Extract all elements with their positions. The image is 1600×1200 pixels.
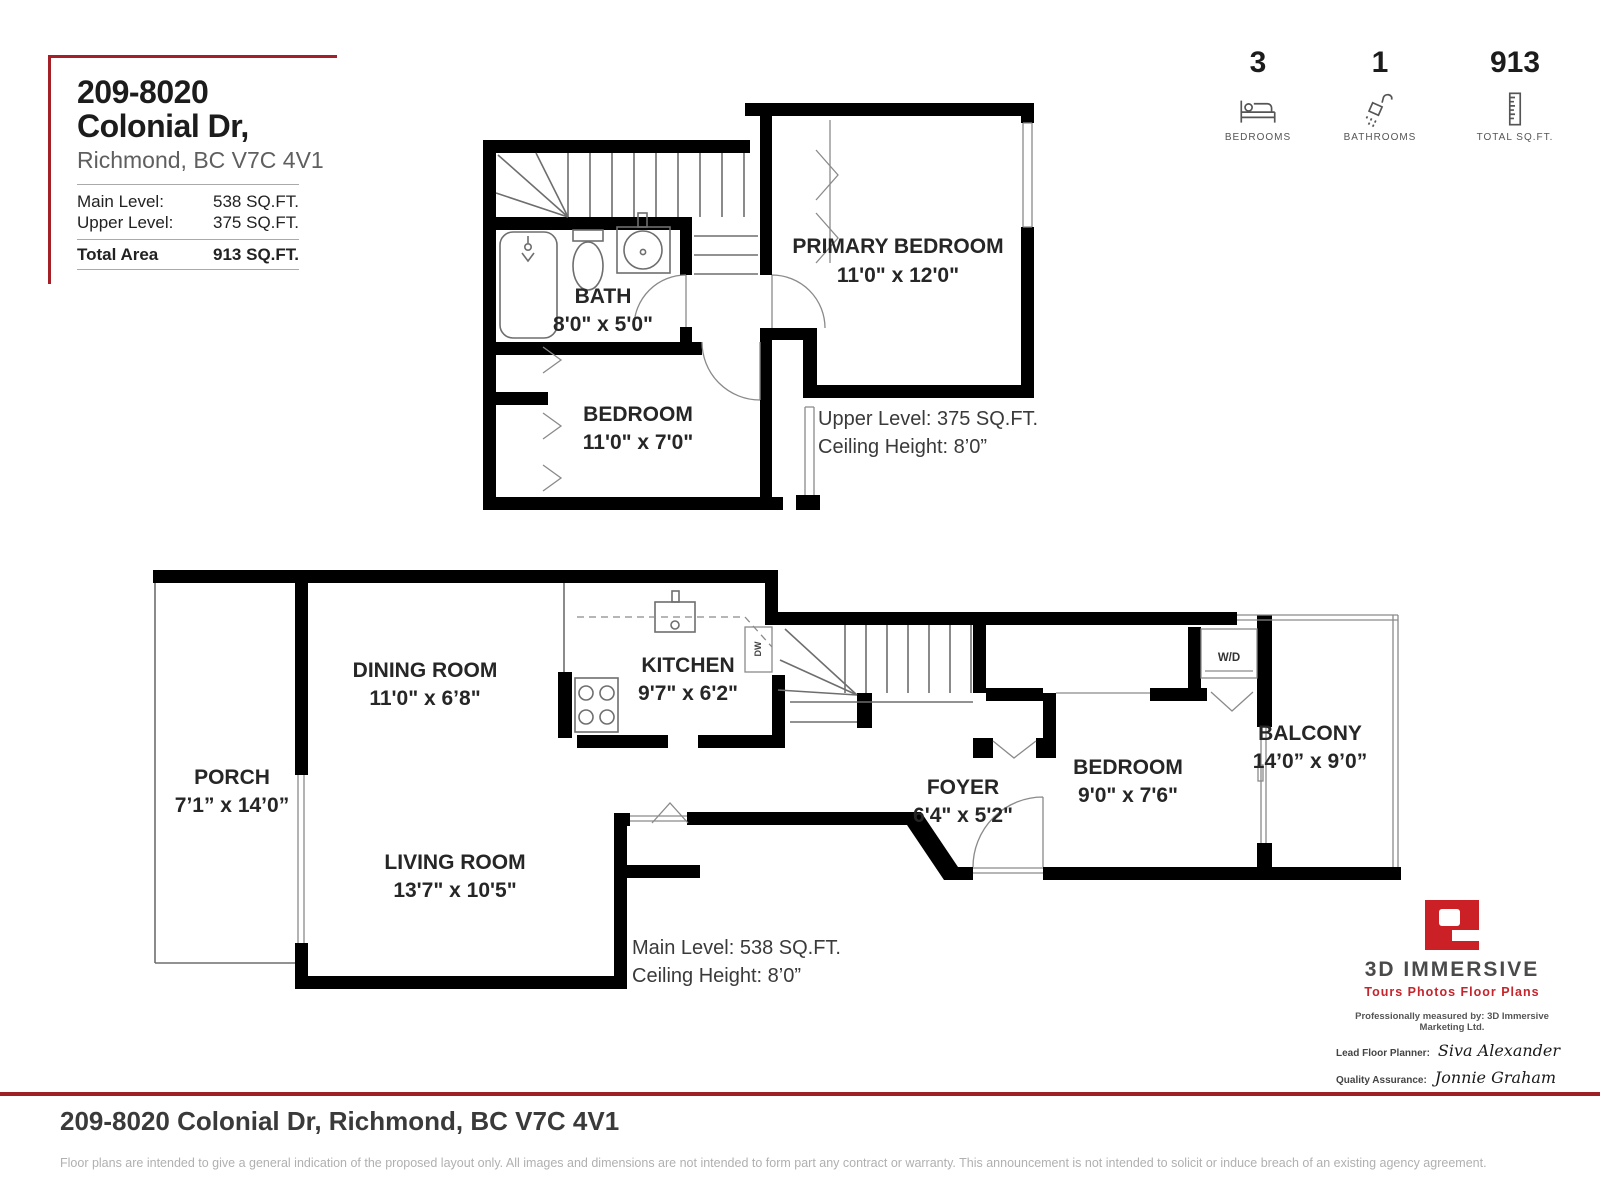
area-row-total: Total Area 913 SQ.FT. (77, 239, 299, 270)
brand-name: 3D IMMERSIVE (1332, 958, 1572, 982)
measured-by: Professionally measured by: 3D Immersive… (1332, 1011, 1572, 1033)
toilet-icon (573, 230, 603, 241)
room-dims-upper-bedroom: 11'0" x 7'0" (583, 431, 694, 454)
floor-plan-sheet: 209-8020 Colonial Dr, Richmond, BC V7C 4… (0, 0, 1600, 1200)
wd-door-mark (1211, 692, 1253, 711)
qa-row: Quality Assurance: Jonnie Graham (1332, 1068, 1572, 1087)
room-label-dining: DINING ROOM (353, 659, 498, 682)
stove-icon (575, 678, 618, 732)
bedrooms-count: 3 (1200, 46, 1316, 80)
area-row-label: Total Area (77, 244, 158, 265)
room-label-upper-bedroom: BEDROOM (583, 403, 693, 426)
shower-icon (1357, 90, 1403, 128)
room-label-porch: PORCH (194, 766, 270, 789)
room-dims-balcony: 14’0” x 9’0” (1253, 750, 1367, 773)
entry-arrow (652, 803, 688, 823)
page-title: 209-8020 Colonial Dr, (77, 76, 337, 143)
3d-immersive-logo-icon (1425, 900, 1479, 950)
wd-label: W/D (1218, 652, 1240, 664)
total-sqft-label: TOTAL SQ.FT. (1457, 132, 1573, 143)
planner-row: Lead Floor Planner: Siva Alexander (1332, 1041, 1572, 1060)
upper-floor-plan: PRIMARY BEDROOM 11'0" x 12'0" BATH 8'0" … (478, 95, 1038, 510)
room-dims-bath: 8'0" x 5'0" (553, 313, 653, 336)
area-row-label: Main Level: (77, 191, 164, 212)
total-sqft-count: 913 (1457, 46, 1573, 80)
footer-address: 209-8020 Colonial Dr, Richmond, BC V7C 4… (60, 1106, 619, 1137)
stat-bedrooms: 3 BEDROOMS (1200, 46, 1316, 143)
room-dims-foyer: 6'4" x 5'2" (913, 804, 1013, 827)
main-ceiling-note: Ceiling Height: 8’0” (632, 965, 801, 987)
planner-signature: Siva Alexander (1438, 1041, 1560, 1060)
room-dims-main-bedroom: 9'0" x 7'6" (1078, 784, 1178, 807)
address-block: 209-8020 Colonial Dr, Richmond, BC V7C 4… (48, 55, 337, 284)
footer-rule (0, 1092, 1600, 1096)
qa-signature: Jonnie Graham (1435, 1068, 1556, 1087)
room-label-kitchen: KITCHEN (641, 654, 734, 677)
stairs-main (778, 625, 973, 722)
footer-disclaimer: Floor plans are intended to give a gener… (60, 1156, 1570, 1170)
room-dims-living: 13'7" x 10'5" (393, 879, 516, 902)
room-dims-primary-bedroom: 11'0" x 12'0" (837, 264, 959, 287)
area-row-value: 375 SQ.FT. (213, 212, 299, 233)
dw-label: DW (753, 641, 763, 656)
room-label-living: LIVING ROOM (384, 851, 525, 874)
ruler-icon (1492, 90, 1538, 128)
main-floor-plan: PORCH 7’1” x 14’0” DINING ROOM 11'0" x 6… (145, 565, 1415, 1000)
branding-block: 3D IMMERSIVE Tours Photos Floor Plans Pr… (1332, 900, 1572, 1087)
room-label-balcony: BALCONY (1258, 722, 1362, 745)
bed-icon (1235, 90, 1281, 128)
room-dims-kitchen: 9'7" x 6'2" (638, 682, 738, 705)
area-row-upper: Upper Level: 375 SQ.FT. (77, 212, 299, 233)
room-label-bath: BATH (575, 285, 632, 308)
area-row-value: 538 SQ.FT. (213, 191, 299, 212)
main-level-note: Main Level: 538 SQ.FT. (632, 937, 841, 959)
bathtub-icon (500, 232, 557, 338)
upper-ceiling-note: Ceiling Height: 8’0” (818, 436, 987, 458)
walls (153, 570, 1401, 989)
brand-tagline: Tours Photos Floor Plans (1332, 985, 1572, 999)
room-label-main-bedroom: BEDROOM (1073, 756, 1183, 779)
stat-bathrooms: 1 BATHROOMS (1322, 46, 1438, 143)
page-subtitle: Richmond, BC V7C 4V1 (77, 147, 337, 174)
room-label-foyer: FOYER (927, 776, 999, 799)
bathrooms-count: 1 (1322, 46, 1438, 80)
shower-head-icon (525, 244, 531, 250)
planner-label: Lead Floor Planner: (1336, 1048, 1430, 1059)
stat-total-sqft: 913 TOTAL SQ.FT. (1457, 46, 1573, 143)
room-dims-dining: 11'0" x 6’8" (369, 687, 480, 710)
closet-door-mark (993, 741, 1036, 758)
stairs-upper (496, 153, 758, 274)
qa-label: Quality Assurance: (1336, 1075, 1427, 1086)
area-row-value: 913 SQ.FT. (213, 244, 299, 265)
area-table: Main Level: 538 SQ.FT. Upper Level: 375 … (77, 184, 299, 270)
bathrooms-label: BATHROOMS (1322, 132, 1438, 143)
bedrooms-label: BEDROOMS (1200, 132, 1316, 143)
area-row-main: Main Level: 538 SQ.FT. (77, 191, 299, 212)
area-row-label: Upper Level: (77, 212, 173, 233)
upper-level-note: Upper Level: 375 SQ.FT. (818, 408, 1038, 430)
room-label-primary-bedroom: PRIMARY BEDROOM (792, 235, 1003, 258)
room-dims-porch: 7’1” x 14’0” (175, 794, 289, 817)
